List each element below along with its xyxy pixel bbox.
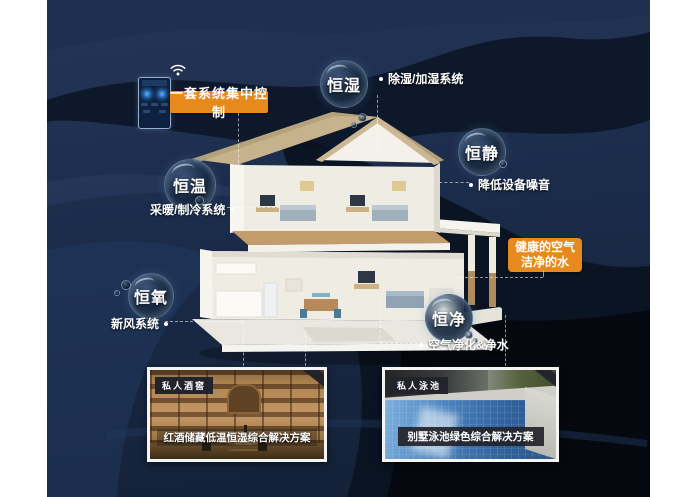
- dashed-connector: [543, 271, 544, 277]
- panel-keys: [139, 103, 170, 106]
- bubble-constant-humidity: 恒湿: [320, 60, 368, 108]
- callout-text: 除湿/加湿系统: [388, 70, 463, 87]
- photo-caption: 红酒储藏低温恒湿综合解决方案: [157, 429, 317, 446]
- callout-text: 采暖/制冷系统: [150, 201, 225, 218]
- central-control-label: 一套系统集中控制: [170, 83, 268, 121]
- bullet-dot: [164, 322, 168, 326]
- dashed-connector: [238, 113, 239, 168]
- callout-fresh-air: 新风系统: [111, 315, 168, 332]
- infographic-canvas: 一套系统集中控制 健康的空气 洁净的水 恒湿 恒静 恒温 恒氧 恒净: [47, 0, 650, 497]
- decor-bubble: [351, 122, 357, 128]
- photo-caption: 别墅泳池绿色综合解决方案: [398, 427, 544, 446]
- dashed-connector: [165, 321, 243, 322]
- bubble-constant-oxygen: 恒氧: [128, 273, 174, 319]
- bullet-dot: [469, 183, 473, 187]
- callout-text: 空气净化&净水: [428, 336, 509, 353]
- dial-icon: [157, 89, 167, 99]
- panel-keys: [139, 110, 170, 113]
- dial-icon: [142, 89, 152, 99]
- dashed-connector: [380, 300, 381, 343]
- panel-header: [142, 80, 167, 86]
- panel-dials: [139, 89, 170, 99]
- wine-cellar-arch: [227, 384, 261, 414]
- photo-badge: 私人泳池: [390, 377, 448, 394]
- callout-noise-reduction: 降低设备噪音: [469, 176, 550, 193]
- decor-bubble: [114, 290, 120, 296]
- dashed-connector: [377, 95, 378, 152]
- callout-humidity-system: 除湿/加湿系统: [379, 70, 463, 87]
- smart-control-panel-icon: [138, 77, 171, 129]
- photo-wine-cellar: 私人酒窖 红酒储藏低温恒湿综合解决方案: [147, 367, 327, 462]
- dashed-connector: [439, 182, 469, 183]
- dashed-connector: [243, 321, 244, 366]
- decor-bubble: [121, 280, 131, 290]
- decor-bubble: [358, 113, 367, 122]
- central-control-tag: 一套系统集中控制: [170, 91, 268, 113]
- dashed-connector: [305, 330, 306, 366]
- dashed-connector: [505, 315, 506, 366]
- dashed-connector: [380, 343, 418, 344]
- highlight-line1: 健康的空气: [515, 240, 575, 255]
- decor-bubble: [499, 160, 507, 168]
- poster-stage: 一套系统集中控制 健康的空气 洁净的水 恒湿 恒静 恒温 恒氧 恒净: [0, 0, 700, 497]
- callout-heating-cooling: 采暖/制冷系统: [150, 201, 234, 218]
- highlight-line2: 洁净的水: [521, 255, 569, 270]
- photo-swimming-pool: 私人泳池 别墅泳池绿色综合解决方案: [382, 367, 559, 462]
- bullet-dot: [230, 208, 234, 212]
- bubble-label: 恒温: [173, 173, 207, 197]
- bullet-dot: [419, 343, 423, 347]
- callout-purification: 空气净化&净水: [419, 336, 509, 353]
- bubble-constant-quiet: 恒静: [458, 128, 506, 176]
- bubble-label: 恒静: [465, 140, 499, 164]
- dashed-connector: [455, 277, 543, 278]
- bubble-label: 恒湿: [327, 72, 361, 96]
- pool-deck-right-art: [525, 387, 556, 459]
- wifi-icon: [169, 62, 187, 77]
- bubble-label: 恒净: [432, 306, 466, 330]
- callout-text: 降低设备噪音: [478, 176, 550, 193]
- bubble-label: 恒氧: [134, 284, 168, 308]
- dashed-connector: [222, 207, 280, 208]
- callout-text: 新风系统: [111, 315, 159, 332]
- healthy-air-water-tag: 健康的空气 洁净的水: [508, 238, 582, 272]
- photo-badge: 私人酒窖: [155, 377, 213, 394]
- bullet-dot: [379, 77, 383, 81]
